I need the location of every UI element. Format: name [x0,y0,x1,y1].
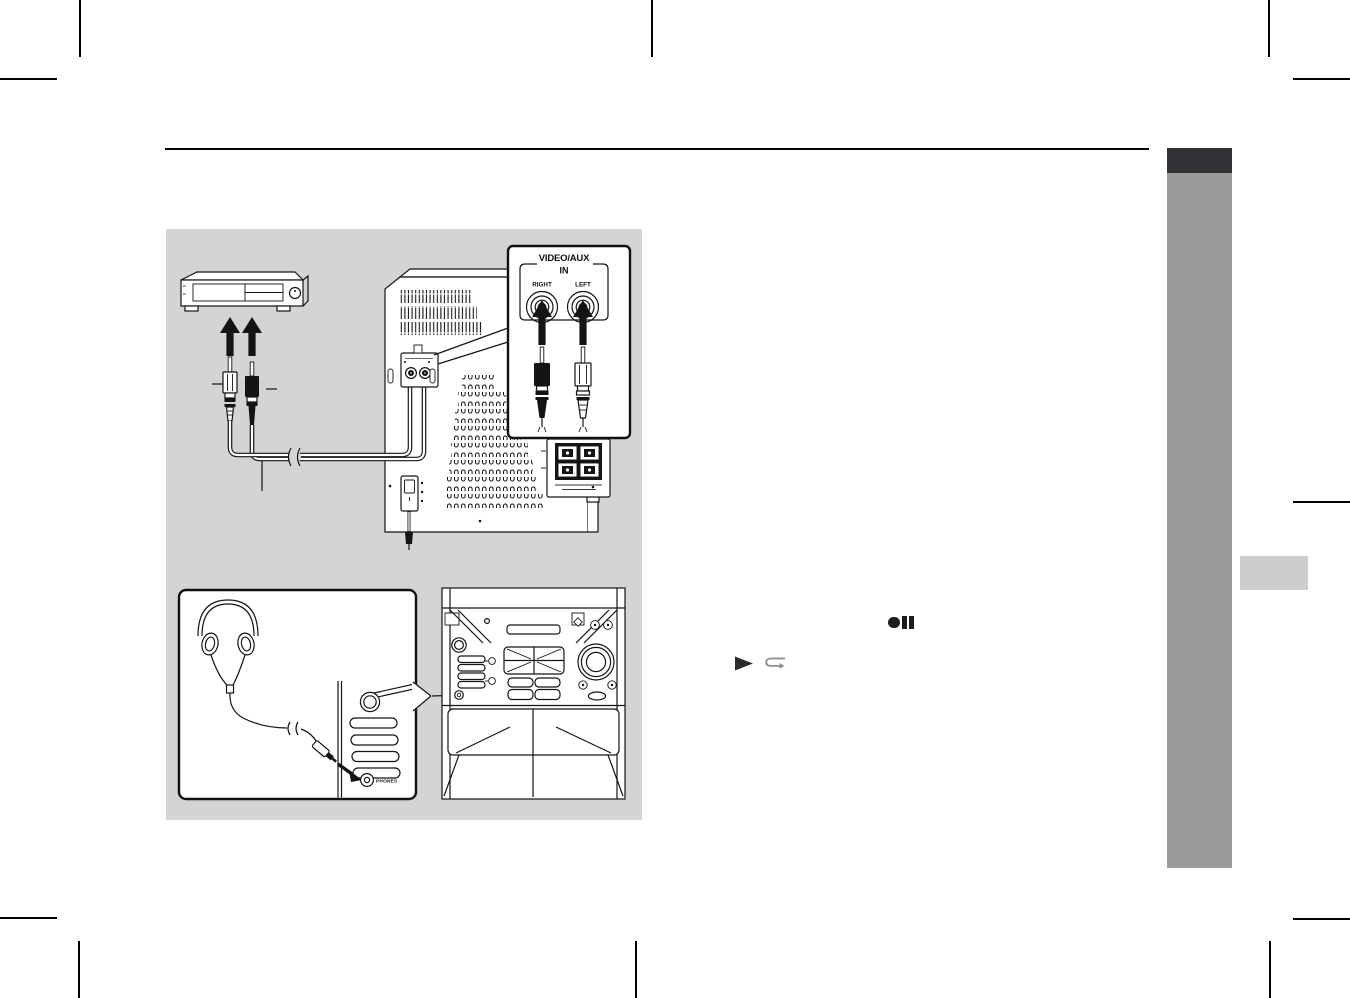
callout-subtitle: IN [560,266,569,276]
crop-mark [1293,918,1350,920]
left-jack-label: LEFT [575,282,591,289]
crop-mark [1268,0,1270,57]
sidebar-band [1167,173,1232,868]
crop-mark [78,941,80,998]
speaker-terminals [541,439,610,497]
pause-bar [909,616,914,629]
connections-diagram: VIDEO/AUX IN RIGHT LEFT [166,229,642,820]
phones-jack-label: PHONES [376,779,398,785]
connection-arrows [220,317,262,356]
record-dot [888,617,900,629]
video-aux-callout: VIDEO/AUX IN RIGHT LEFT [508,246,630,438]
section-rule [165,148,1149,150]
crop-mark [1269,941,1271,998]
crop-mark [0,78,57,80]
crop-mark [1293,501,1350,503]
crop-mark [1293,78,1350,80]
play-icon [734,656,754,676]
record-pause-icon [888,616,914,629]
callout-title: VIDEO/AUX [539,253,590,264]
diagram-panel: VIDEO/AUX IN RIGHT LEFT [166,229,642,820]
crop-mark [79,0,81,57]
rca-plug-white [212,357,237,421]
manual-page: VIDEO/AUX IN RIGHT LEFT [0,0,1350,998]
page-number-marker [1240,556,1308,590]
headphones-callout: PHONES [179,590,456,799]
tape-direction-icon [765,657,787,675]
rca-plug-black [245,362,277,425]
vcr-player [181,272,308,311]
crop-mark [635,941,637,998]
pause-bar [902,616,907,629]
right-jack-label: RIGHT [532,282,552,289]
sidebar-section-tab [1167,148,1232,173]
crop-mark [651,0,653,57]
crop-mark [0,917,57,919]
front-view [442,588,625,799]
